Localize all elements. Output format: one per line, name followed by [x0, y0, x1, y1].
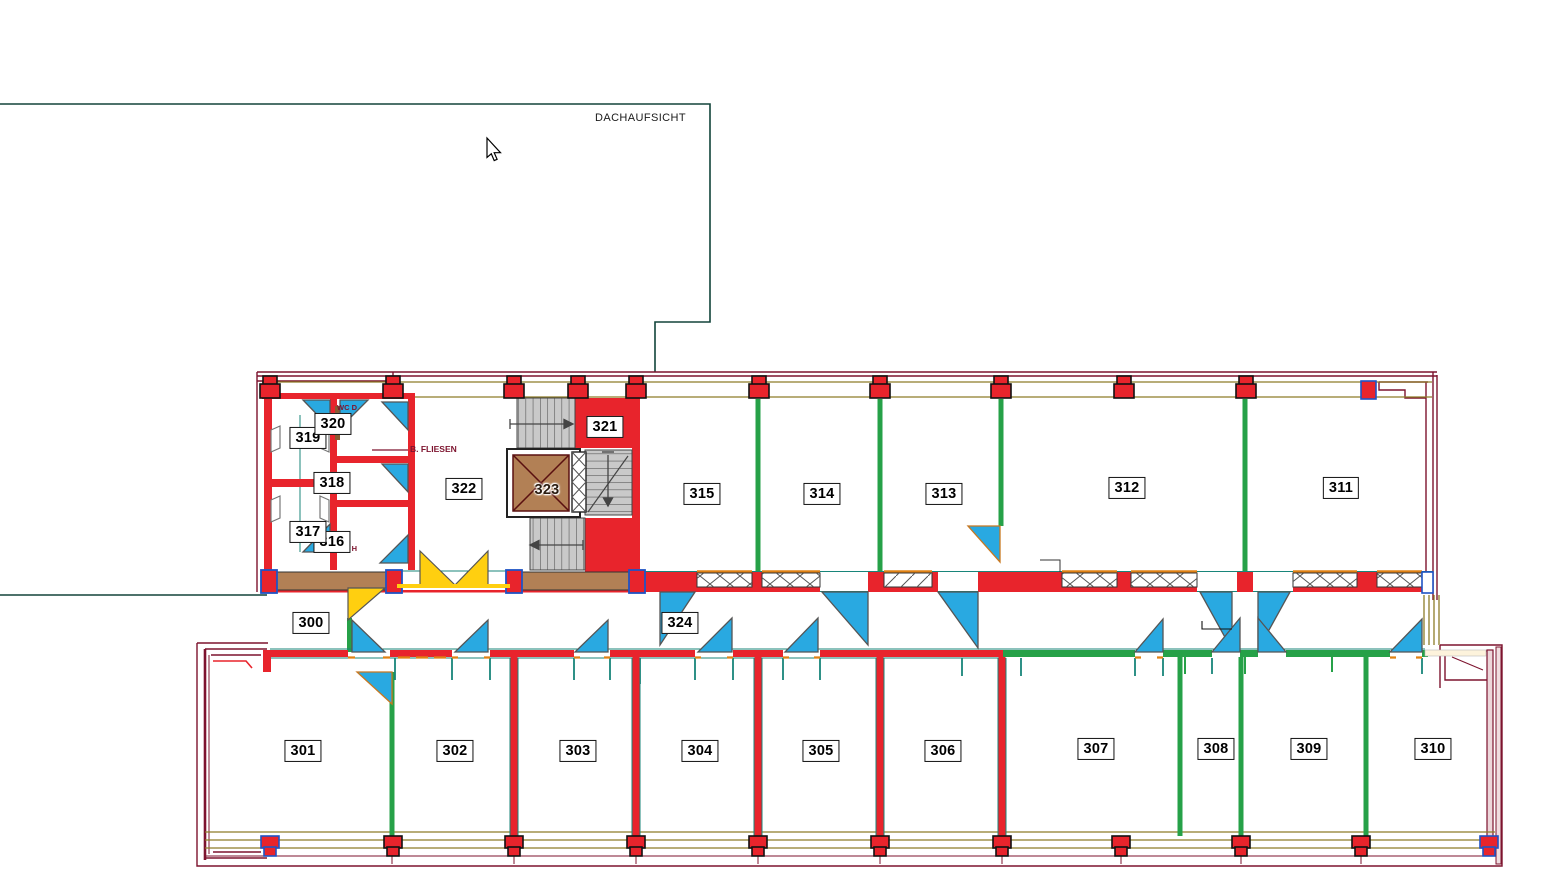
room-label-305: 305	[802, 740, 839, 762]
room-label-321: 321	[586, 416, 623, 438]
room-label-307: 307	[1077, 738, 1114, 760]
room-label-314: 314	[803, 483, 840, 505]
b-fliesen-label: B. FLIESEN	[410, 444, 457, 454]
room-label-317: 317	[289, 521, 326, 543]
room-label-304: 304	[681, 740, 718, 762]
room-label-324: 324	[661, 612, 698, 634]
room-label-309: 309	[1290, 738, 1327, 760]
plan-title: DACHAUFSICHT	[595, 112, 686, 124]
room-label-302: 302	[436, 740, 473, 762]
room-label-322: 322	[445, 478, 482, 500]
room-label-318: 318	[313, 472, 350, 494]
room-label-320: 320	[314, 413, 351, 435]
wc-d-label: WC D	[337, 403, 357, 412]
room-label-308: 308	[1197, 738, 1234, 760]
sill-strip	[1425, 650, 1486, 656]
room-label-310: 310	[1414, 738, 1451, 760]
room-label-306: 306	[924, 740, 961, 762]
floor-plan-drawing	[0, 0, 1562, 890]
room-label-301: 301	[284, 740, 321, 762]
room-label-315: 315	[683, 483, 720, 505]
mouse-cursor-icon	[484, 136, 506, 164]
room-label-313: 313	[925, 483, 962, 505]
room-label-300: 300	[292, 612, 329, 634]
room-label-303: 303	[559, 740, 596, 762]
room-label-323: 323	[529, 480, 564, 500]
room-label-312: 312	[1108, 477, 1145, 499]
floor-plan-canvas: DACHAUFSICHT WC D WC H B. FLIESEN 300 30…	[0, 0, 1562, 890]
room-label-311: 311	[1323, 477, 1359, 499]
